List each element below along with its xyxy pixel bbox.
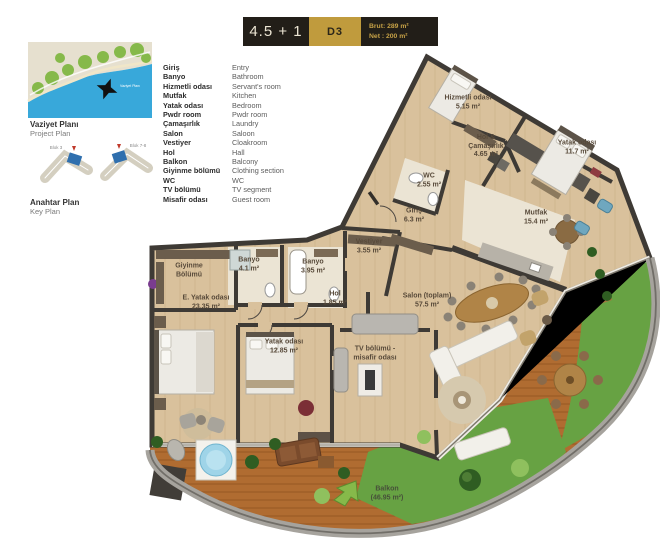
key-plan-subtitle: Key Plan [30,207,79,216]
room-label-wc: WC2.55 m² [417,172,441,189]
unit-badge: D3 [309,17,361,46]
room-label-giris: Giriş6.3 m² [404,207,424,224]
legend-row: GirişEntry [163,63,284,72]
layout-type-badge: 4.5 + 1 [243,17,309,46]
legend-row: ÇamaşırlıkLaundry [163,119,284,128]
room-label-yatak-odasi-3: Yatak odası12.85 m² [265,338,304,355]
legend-row: HolHall [163,148,284,157]
room-label-yatak-odasi-2: Yatak odası11.7 m² [558,139,597,156]
room-label-vestiyer: Vestiyer3.55 m² [356,238,383,255]
map-watermark: Vaziyet Planı [120,84,140,88]
legend-row: BalkonBalcony [163,157,284,166]
legend-row: VestiyerCloakroom [163,138,284,147]
layout-type-text: 4.5 + 1 [249,23,302,40]
room-label-banyo-2: Banyo3.95 m² [301,258,325,275]
room-label-balkon: Balkon(46.95 m²) [371,485,404,502]
key-plan-block-left-label: Blok 3 [50,145,63,150]
legend-row: Misafir odasıGuest room [163,195,284,204]
unit-text: D3 [327,26,343,38]
net-area: Net : 200 m² [369,32,408,42]
floor-plan-svg [0,0,660,546]
legend-row: Hizmetli odasıServant's room [163,82,284,91]
area-stats: Brut: 289 m² Net : 200 m² [361,17,438,46]
legend-row: TV bölümüTV segment [163,185,284,194]
project-plan-subtitle: Project Plan [30,129,78,138]
legend-row: Pwdr roomPwdr room [163,110,284,119]
legend: GirişEntry BanyoBathroom Hizmetli odasıS… [163,63,284,204]
unit-marker-icon [72,146,76,151]
room-label-salon: Salon (toplam)57.5 m² [403,292,452,309]
key-plan-caption: Anahtar Plan Key Plan [30,198,79,216]
room-label-tv-bolumu: TV bölümü -misafir odası [353,345,396,362]
legend-row: MutfakKitchen [163,91,284,100]
room-label-mutfak: Mutfak15.4 m² [524,209,548,226]
key-plan-title: Anahtar Plan [30,198,79,207]
room-label-hol-camasirlik: Hol &Çamaşırlık4.65 m² [468,134,503,160]
key-plan-block-right-label: Blok 7-8 [130,143,147,148]
room-label-e-yatak-odasi: E. Yatak odası23.35 m² [183,294,230,311]
room-label-hol: Hol1.85 m² [323,290,347,307]
legend-row: WCWC [163,176,284,185]
project-plan-map [28,42,152,118]
room-label-hizmetli-odasi: Hizmetli odası5.15 m² [444,94,491,111]
project-plan-title: Vaziyet Planı [30,120,78,129]
project-plan-caption: Vaziyet Planı Project Plan [30,120,78,138]
brut-area: Brut: 289 m² [369,22,409,32]
legend-row: Yatak odasıBedroom [163,101,284,110]
unit-marker-icon [117,144,121,149]
deck-table [318,456,334,468]
legend-row: SalonSaloon [163,129,284,138]
legend-row: Giyinme bölümüClothing section [163,166,284,175]
legend-row: BanyoBathroom [163,72,284,81]
floor-plan-page: 4.5 + 1 D3 Brut: 289 m² Net : 200 m² Vaz… [0,0,660,546]
room-label-banyo-1: Banyo4.1 m² [238,256,259,273]
room-label-giyinme-bolumu: GiyinmeBölümü [175,262,203,279]
